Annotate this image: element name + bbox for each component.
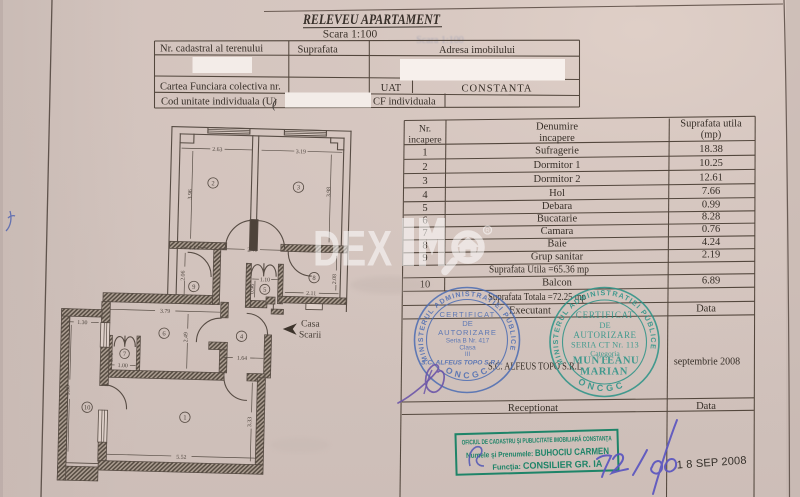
svg-text:Scara 1:100: Scara 1:100 — [323, 29, 378, 41]
svg-text:5.52: 5.52 — [176, 455, 186, 461]
svg-text:2.11: 2.11 — [306, 291, 316, 297]
svg-text:Denumire: Denumire — [536, 122, 578, 133]
svg-text:Casa: Casa — [301, 318, 321, 330]
svg-text:5: 5 — [422, 203, 427, 214]
svg-text:2: 2 — [422, 162, 427, 173]
svg-text:Adresa imobilului: Adresa imobilului — [439, 45, 515, 56]
svg-text:2: 2 — [211, 180, 214, 187]
svg-text:CONSTANTA: CONSTANTA — [462, 84, 533, 95]
svg-text:Suprafata Utila =65.36 mp: Suprafata Utila =65.36 mp — [489, 264, 589, 275]
svg-text:4.24: 4.24 — [702, 237, 721, 248]
svg-text:CERTIFICAT: CERTIFICAT — [576, 310, 634, 320]
svg-text:Cod unitate individuala (U): Cod unitate individuala (U) — [161, 97, 277, 108]
svg-text:Dormitor 1: Dormitor 1 — [534, 160, 581, 171]
svg-text:6.89: 6.89 — [702, 276, 720, 287]
svg-text:7.66: 7.66 — [702, 186, 720, 197]
svg-text:Data: Data — [696, 304, 716, 315]
svg-text:Suprafata: Suprafata — [298, 45, 339, 56]
svg-text:3.19: 3.19 — [296, 149, 306, 155]
svg-text:UAT: UAT — [381, 83, 402, 94]
svg-text:4: 4 — [422, 190, 428, 201]
svg-text:3: 3 — [297, 184, 300, 191]
svg-text:1.12: 1.12 — [189, 245, 199, 251]
svg-text:MARIAN: MARIAN — [580, 367, 628, 378]
svg-text:1: 1 — [183, 415, 186, 422]
svg-text:Sufragerie: Sufragerie — [535, 146, 579, 157]
svg-text:CF individuala: CF individuala — [373, 97, 436, 108]
svg-text:2.19: 2.19 — [702, 250, 720, 261]
svg-text:1: 1 — [422, 148, 427, 159]
svg-text:Hol: Hol — [549, 188, 565, 199]
svg-text:Grup sanitar: Grup sanitar — [531, 251, 584, 262]
svg-text:RELEVEU APARTAMENT: RELEVEU APARTAMENT — [302, 12, 441, 28]
svg-text:Debara: Debara — [542, 201, 573, 212]
svg-text:Bucatarie: Bucatarie — [537, 214, 578, 225]
svg-text:2.40: 2.40 — [247, 247, 257, 253]
svg-text:0.76: 0.76 — [702, 224, 720, 235]
svg-text:3.98: 3.98 — [326, 187, 332, 197]
svg-text:septembrie 2008: septembrie 2008 — [674, 357, 740, 368]
svg-text:1.30: 1.30 — [77, 320, 87, 326]
svg-text:AUTORIZARE: AUTORIZARE — [573, 330, 636, 340]
svg-text:8.28: 8.28 — [702, 212, 720, 223]
svg-text:Nr. cadastral al terenului: Nr. cadastral al terenului — [160, 44, 263, 55]
svg-text:1.00: 1.00 — [118, 363, 128, 369]
svg-text:18.38: 18.38 — [699, 144, 723, 155]
svg-text:10: 10 — [84, 404, 91, 411]
svg-text:0.96: 0.96 — [250, 284, 256, 294]
svg-text:III: III — [465, 351, 471, 358]
svg-text:R: R — [485, 228, 490, 234]
svg-text:Camara: Camara — [541, 226, 574, 237]
svg-text:DE: DE — [462, 319, 473, 328]
svg-text:1.64: 1.64 — [237, 356, 247, 362]
svg-text:DE: DE — [599, 321, 610, 330]
svg-text:5.30: 5.30 — [65, 385, 71, 395]
svg-text:12.61: 12.61 — [699, 172, 723, 183]
svg-text:3.79: 3.79 — [160, 309, 170, 315]
svg-text:(: ( — [272, 96, 277, 111]
svg-text:incapere: incapere — [408, 134, 442, 145]
svg-text:Balcon: Balcon — [542, 278, 572, 289]
svg-text:CERTIFICAT: CERTIFICAT — [439, 310, 495, 319]
svg-text:3.96: 3.96 — [188, 189, 194, 199]
svg-text:Receptionat: Receptionat — [508, 403, 558, 414]
svg-text:5: 5 — [263, 287, 266, 294]
svg-text:Dormitor 2: Dormitor 2 — [534, 174, 581, 185]
svg-text:MUNTEANU: MUNTEANU — [573, 356, 639, 367]
svg-text:2.63: 2.63 — [212, 147, 222, 153]
svg-text:incapere: incapere — [539, 133, 575, 144]
svg-text:(mp): (mp) — [701, 130, 722, 141]
svg-text:Nr.: Nr. — [419, 124, 431, 135]
svg-text:2.49: 2.49 — [183, 332, 189, 342]
svg-text:3: 3 — [422, 176, 427, 187]
svg-text:Seria B Nr. 417: Seria B Nr. 417 — [446, 338, 490, 345]
svg-text:9: 9 — [192, 284, 195, 291]
svg-text:DEX: DEX — [313, 221, 393, 276]
svg-text:Data: Data — [696, 401, 716, 412]
svg-text:Scarii: Scarii — [299, 329, 322, 341]
svg-text:Cartea Funciara colectiva nr.: Cartea Funciara colectiva nr. — [160, 82, 281, 93]
svg-text:0.99: 0.99 — [702, 199, 720, 210]
svg-text:1.10: 1.10 — [260, 277, 270, 283]
svg-text:Suprafata utila: Suprafata utila — [680, 118, 742, 129]
svg-text:Executant: Executant — [509, 305, 551, 316]
svg-text:10.25: 10.25 — [699, 158, 723, 169]
svg-text:3.33: 3.33 — [247, 417, 253, 427]
svg-text:AUTORIZARE: AUTORIZARE — [438, 328, 497, 337]
svg-text:2.06: 2.06 — [180, 270, 186, 280]
svg-text:Baie: Baie — [547, 239, 567, 250]
svg-text:0.76: 0.76 — [109, 352, 115, 362]
